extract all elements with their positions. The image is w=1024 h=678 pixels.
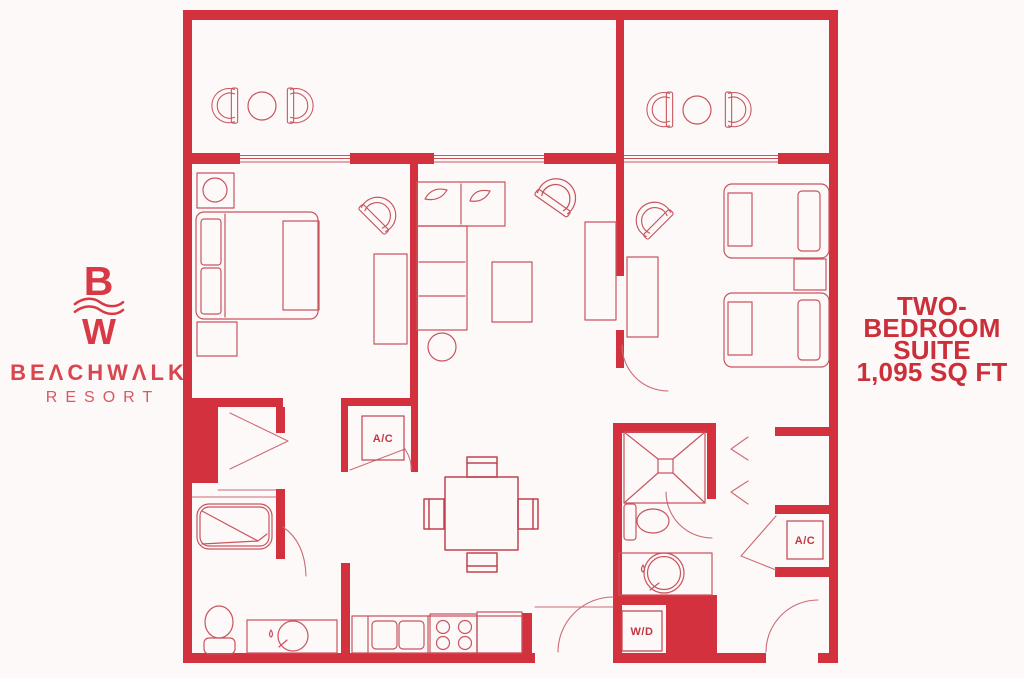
dining-chair bbox=[518, 499, 538, 529]
kitchen-sink bbox=[399, 621, 424, 649]
bedroom2-furniture bbox=[627, 184, 829, 367]
vanity bbox=[619, 553, 712, 595]
bed bbox=[724, 293, 829, 367]
balcony-chair bbox=[212, 88, 238, 123]
pillow bbox=[798, 300, 820, 360]
balcony-table bbox=[248, 92, 276, 120]
kitchen bbox=[352, 612, 522, 653]
master-bedroom-furniture bbox=[196, 173, 407, 356]
dresser bbox=[627, 257, 658, 337]
walls bbox=[183, 10, 838, 663]
armchair bbox=[534, 171, 583, 218]
bed bbox=[724, 184, 829, 258]
refrigerator bbox=[477, 612, 522, 653]
sofa-pillow bbox=[470, 190, 490, 201]
nightstand bbox=[197, 322, 237, 356]
vanity bbox=[247, 620, 337, 653]
sofa-pillow bbox=[425, 189, 447, 200]
burner bbox=[437, 621, 450, 634]
coffee-table bbox=[492, 262, 532, 322]
closet2-door-upper bbox=[731, 437, 748, 460]
closet2-door-lower bbox=[731, 481, 748, 504]
bedroom2-door-arc bbox=[622, 345, 668, 391]
balcony-left bbox=[212, 88, 313, 123]
bed-fold bbox=[283, 221, 319, 310]
lamp bbox=[203, 178, 227, 202]
balcony-chair bbox=[287, 88, 313, 123]
bathroom1-door-arc bbox=[283, 527, 306, 576]
toilet bbox=[624, 504, 636, 540]
burner bbox=[437, 637, 450, 650]
armchair bbox=[358, 189, 403, 234]
bed-fold bbox=[728, 302, 752, 355]
door-swings bbox=[192, 345, 818, 652]
burner bbox=[459, 621, 472, 634]
sink bbox=[278, 621, 308, 651]
balcony-chair bbox=[725, 92, 751, 127]
bathroom1 bbox=[197, 504, 337, 654]
faucet-icon bbox=[642, 565, 645, 572]
ac-closet2-door bbox=[741, 516, 776, 570]
balcony-chair bbox=[647, 92, 673, 127]
floorplan-drawing: A/C A/C W/D bbox=[0, 0, 1024, 678]
dining-chair bbox=[467, 457, 497, 477]
second-entry-door-arc bbox=[766, 600, 818, 652]
toilet bbox=[205, 606, 233, 638]
ac-closet2-label: A/C bbox=[795, 535, 815, 547]
pillow bbox=[201, 268, 221, 314]
armchair bbox=[628, 194, 673, 239]
faucet-icon bbox=[270, 630, 273, 637]
pillow bbox=[798, 191, 820, 251]
living-room-furniture bbox=[417, 171, 616, 361]
entry-door-arc bbox=[558, 597, 613, 652]
sliding-door-lines bbox=[240, 156, 778, 163]
side-table bbox=[428, 333, 456, 361]
dresser bbox=[374, 254, 407, 344]
bed-fold bbox=[728, 193, 752, 246]
nightstand bbox=[794, 259, 826, 290]
floorplan-page: B W BEΛCHWΛLK RESORT TWO-BEDROOM SUITE 1… bbox=[0, 0, 1024, 678]
pillow bbox=[201, 219, 221, 265]
dining-chair bbox=[424, 499, 444, 529]
sofa-sectional bbox=[417, 226, 467, 330]
sink bbox=[644, 553, 684, 593]
dining-set bbox=[424, 457, 538, 572]
balcony-right bbox=[647, 92, 751, 127]
burner bbox=[459, 637, 472, 650]
balcony-table bbox=[683, 96, 711, 124]
washer-dryer-label: W/D bbox=[631, 626, 654, 638]
kitchen-sink bbox=[372, 621, 397, 649]
tv-console bbox=[585, 222, 616, 320]
ac-closet1-label: A/C bbox=[373, 433, 393, 445]
dining-chair bbox=[467, 553, 497, 572]
plan-labels: A/C A/C W/D bbox=[362, 416, 823, 638]
dining-table bbox=[445, 477, 518, 550]
